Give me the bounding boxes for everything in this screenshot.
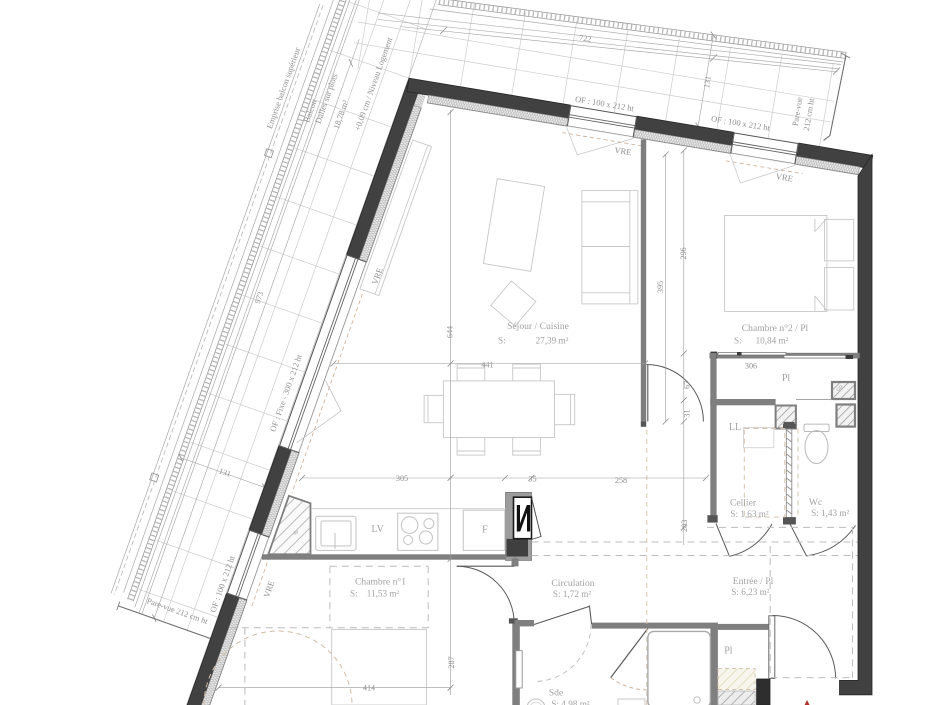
svg-text:67: 67 xyxy=(683,381,692,389)
svg-text:Pl: Pl xyxy=(782,373,791,384)
svg-text:S: 4,98 m²: S: 4,98 m² xyxy=(551,699,589,705)
svg-text:722: 722 xyxy=(579,33,592,43)
svg-text:Circulation: Circulation xyxy=(551,578,594,589)
svg-text:S: 1,43 m²: S: 1,43 m² xyxy=(811,508,849,518)
svg-text:441: 441 xyxy=(481,360,493,369)
svg-text:644: 644 xyxy=(446,326,455,338)
svg-text:Séjour / Cuisine: Séjour / Cuisine xyxy=(507,321,569,332)
svg-text:S: 1,63 m²: S: 1,63 m² xyxy=(730,509,768,519)
svg-text:395: 395 xyxy=(656,281,665,293)
svg-text:10,84 m²: 10,84 m² xyxy=(756,336,789,346)
svg-text:Pl: Pl xyxy=(724,645,733,656)
svg-text:S:: S: xyxy=(734,336,742,346)
svg-text:S:: S: xyxy=(350,589,358,599)
svg-text:35: 35 xyxy=(528,474,536,483)
svg-text:258: 258 xyxy=(615,476,627,485)
svg-text:LL: LL xyxy=(729,422,741,433)
svg-text:306: 306 xyxy=(745,362,757,371)
svg-text:287: 287 xyxy=(447,656,456,668)
svg-text:S: 6,23 m²: S: 6,23 m² xyxy=(731,587,769,597)
svg-text:Sde: Sde xyxy=(549,688,563,699)
svg-text:Wc: Wc xyxy=(809,497,822,508)
svg-text:Chambre n°2 / Pl: Chambre n°2 / Pl xyxy=(742,323,809,334)
svg-text:283: 283 xyxy=(680,520,689,532)
svg-text:31: 31 xyxy=(683,409,692,417)
svg-text:296: 296 xyxy=(679,247,688,259)
svg-text:414: 414 xyxy=(363,684,375,693)
svg-text:S: 1,72 m²: S: 1,72 m² xyxy=(553,589,591,599)
svg-text:LV: LV xyxy=(371,524,384,535)
svg-text:F: F xyxy=(482,525,488,536)
svg-text:305: 305 xyxy=(396,474,408,483)
svg-text:Chambre n°1: Chambre n°1 xyxy=(355,577,406,588)
svg-text:27,39 m²: 27,39 m² xyxy=(536,336,569,346)
svg-text:11,53 m²: 11,53 m² xyxy=(367,589,400,599)
svg-text:S:: S: xyxy=(498,336,506,346)
svg-text:Entrée / Pl: Entrée / Pl xyxy=(733,576,774,587)
svg-text:Cellier: Cellier xyxy=(730,498,757,509)
